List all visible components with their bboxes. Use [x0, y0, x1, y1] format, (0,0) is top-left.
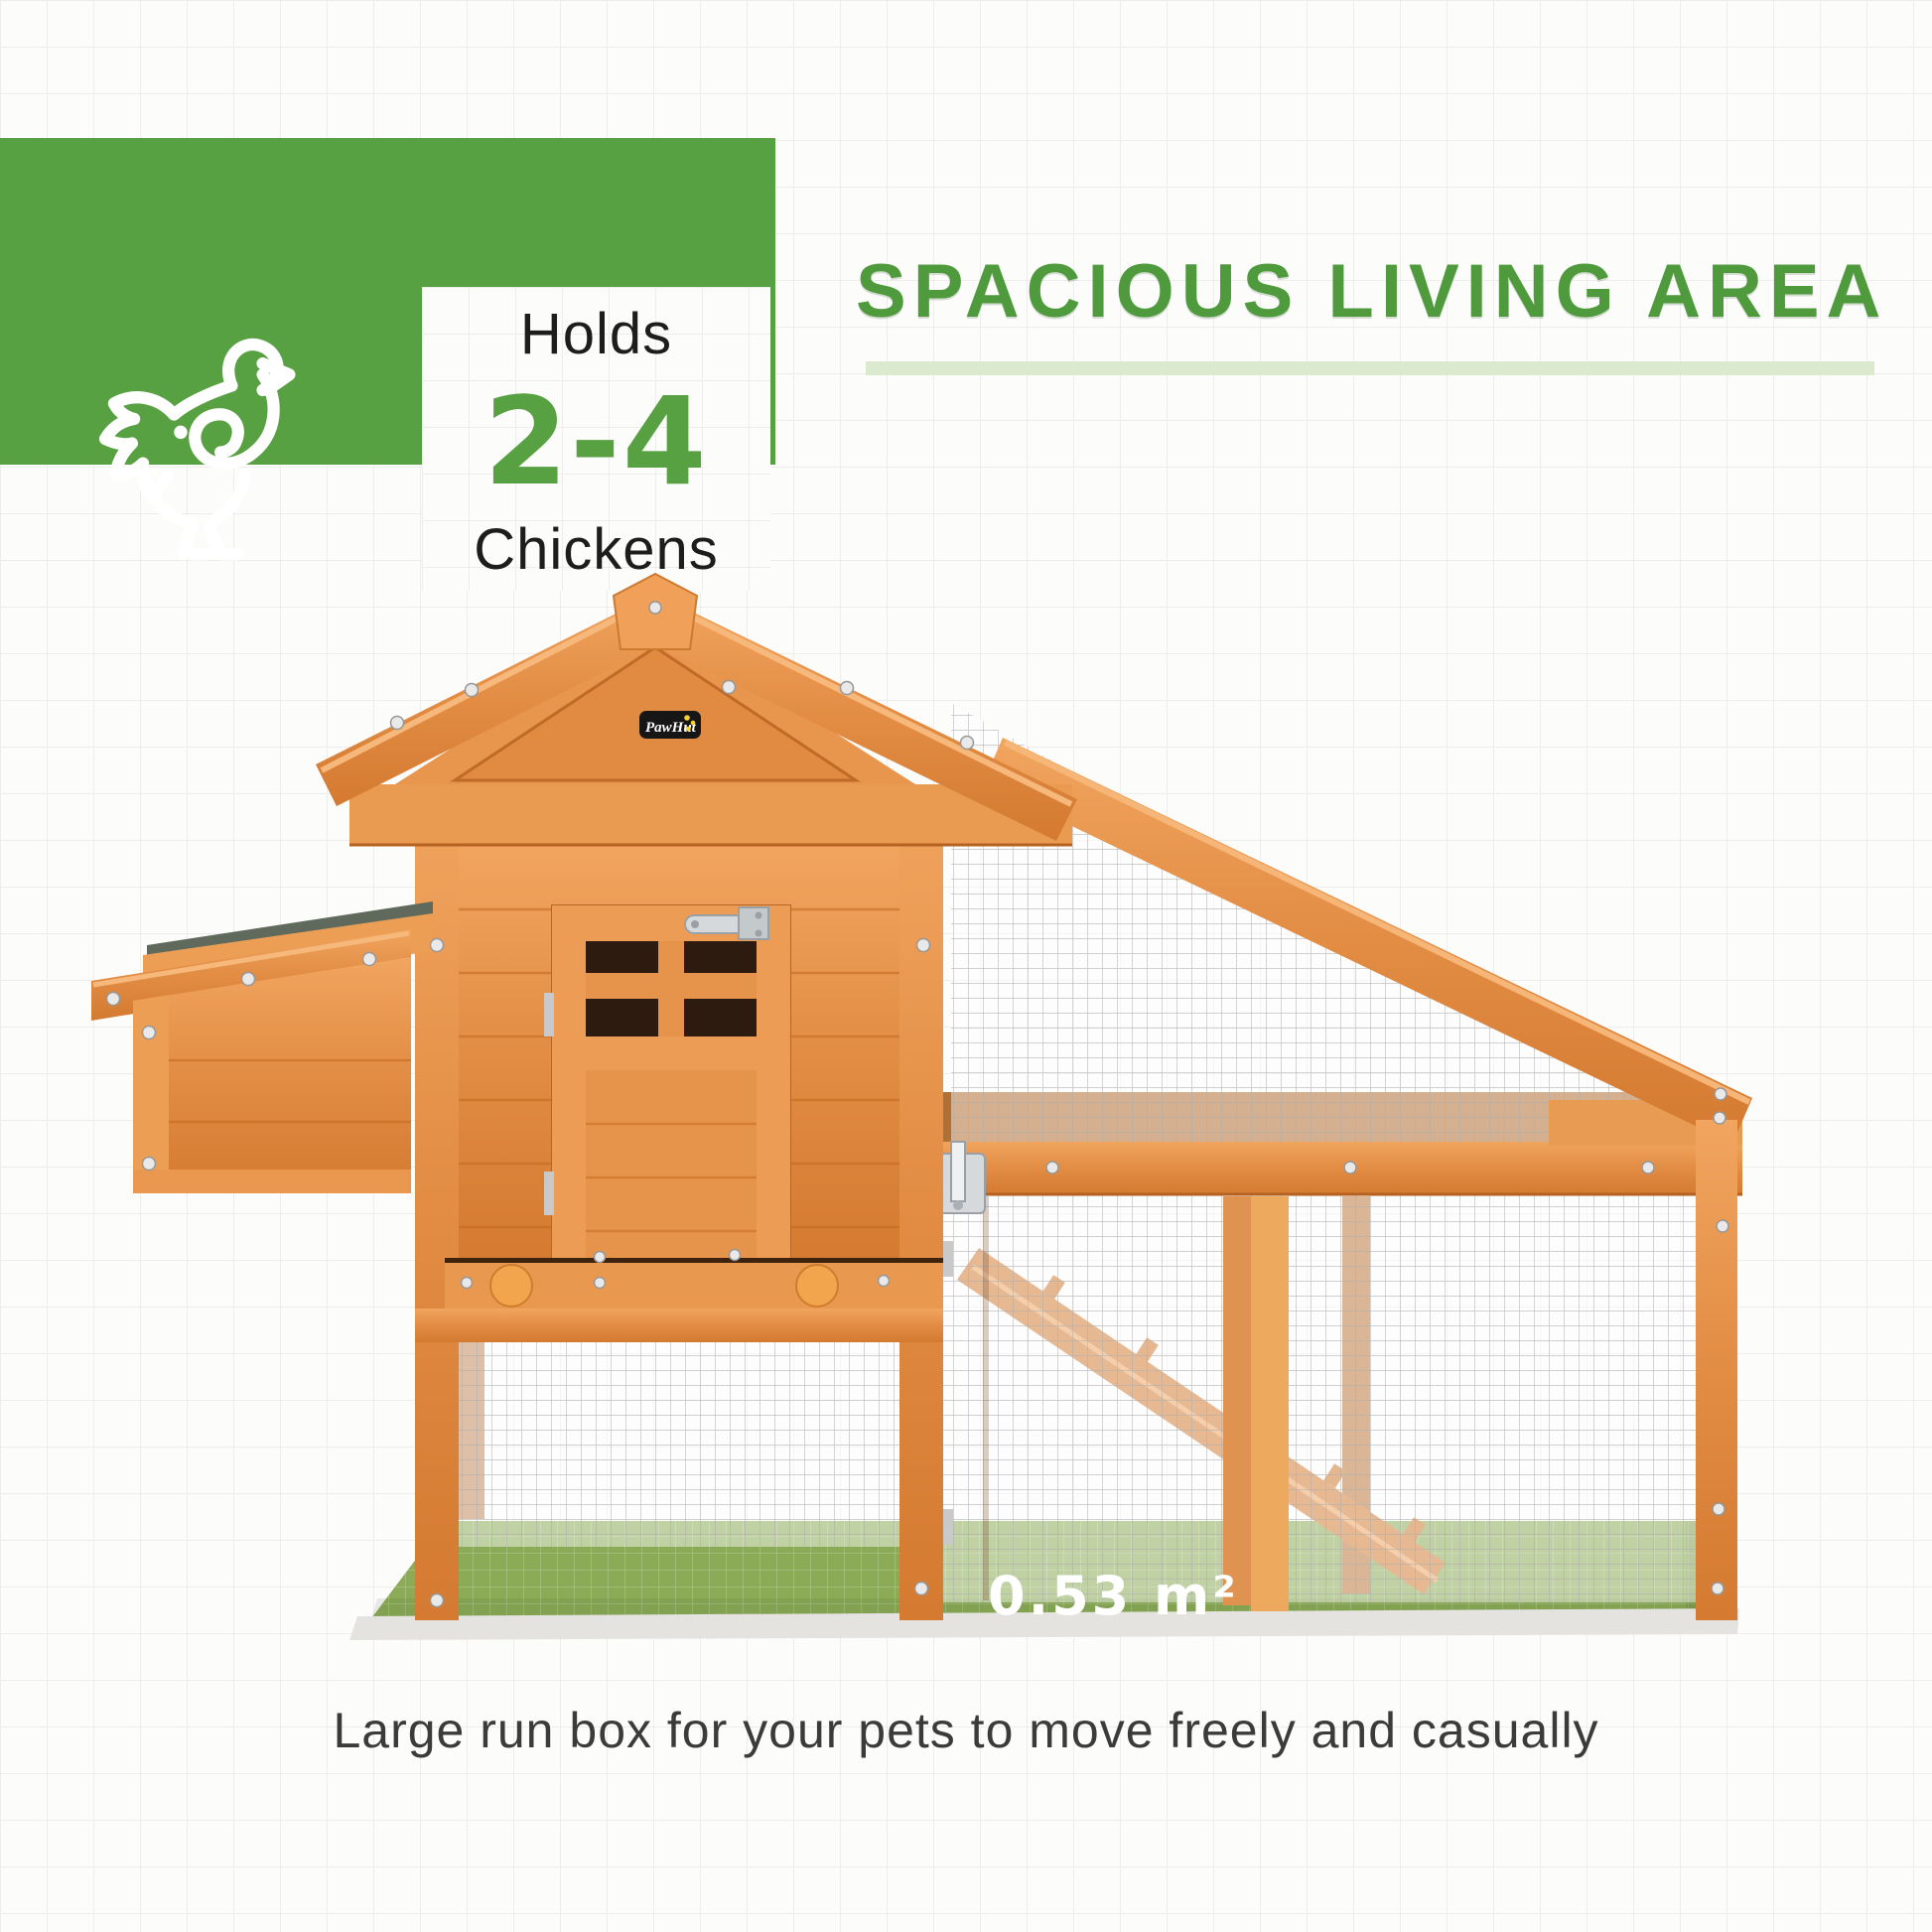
- caption-text: Large run box for your pets to move free…: [0, 1702, 1932, 1759]
- dropping-tray: [415, 1261, 943, 1342]
- mesh-run-front: [943, 1148, 1737, 1602]
- nesting-box: [91, 901, 433, 1193]
- house-right-post: [899, 786, 943, 1620]
- tray-knob-right: [796, 1265, 838, 1307]
- run-door-stile: [1223, 1196, 1251, 1605]
- coop-door: [544, 905, 790, 1279]
- floor-area-label: 0.53 m²: [988, 1565, 1239, 1627]
- run-center-post: [1251, 1196, 1289, 1611]
- coop-illustration: PawHut: [0, 0, 1932, 1932]
- run-end-post: [1696, 1120, 1737, 1620]
- tray-knob-left: [490, 1265, 532, 1307]
- brand-logo: PawHut: [639, 711, 701, 739]
- mesh-under-house: [459, 1335, 899, 1547]
